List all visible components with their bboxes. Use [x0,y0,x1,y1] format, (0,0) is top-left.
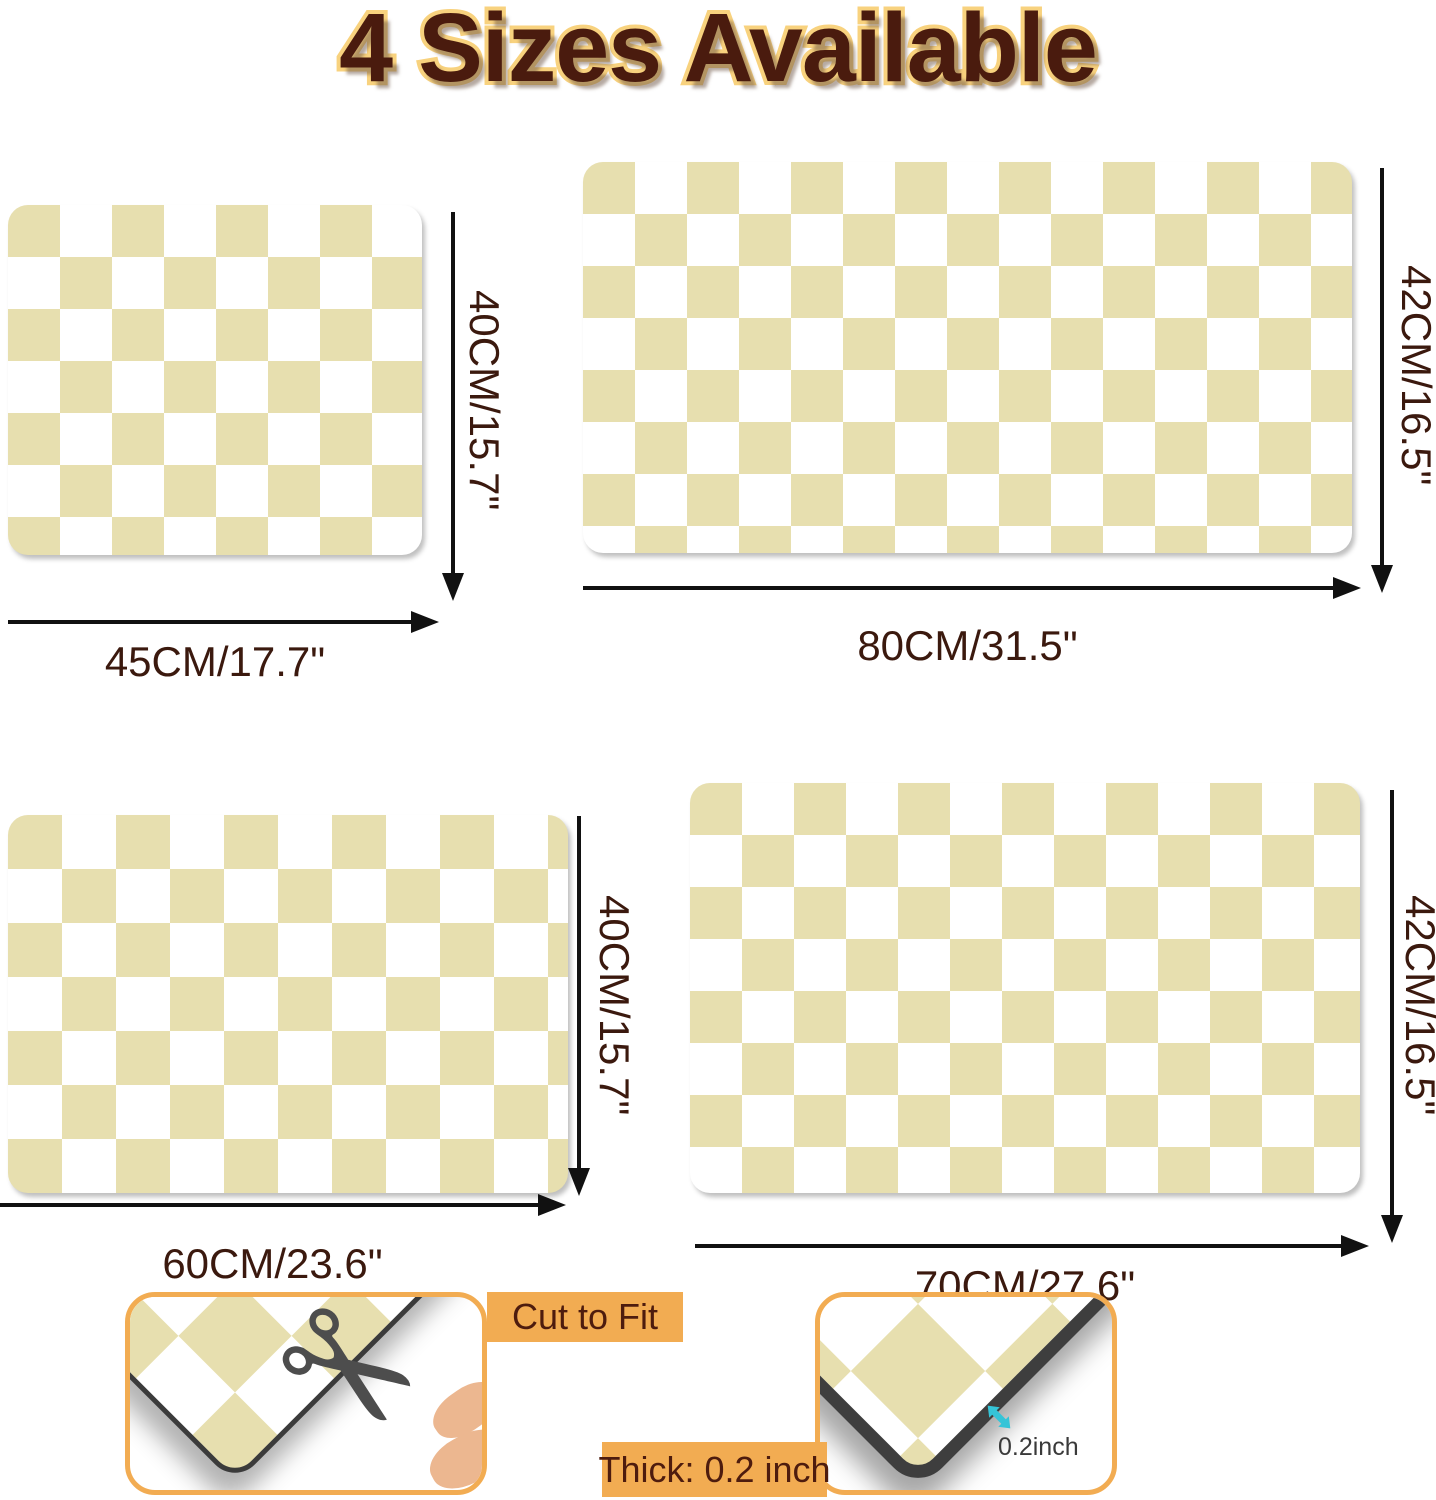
mat-small-height-label: 40CM/15.7" [460,230,508,570]
mat-small-width-arrow [8,620,412,624]
arrow-head-icon [442,573,464,601]
mat-medium-height-arrow [577,816,581,1169]
mat-extra-large-width-label: 80CM/31.5" [583,622,1352,670]
cut-to-fit-photo: ✂ [125,1292,487,1495]
thickness-label: Thick: 0.2 inch [602,1442,827,1497]
cut-to-fit-label: Cut to Fit [487,1292,683,1342]
arrow-head-icon [1371,565,1393,593]
mat-large-height-arrow [1390,790,1394,1216]
arrow-head-icon [568,1168,590,1196]
thickness-value: 0.2inch [998,1433,1079,1462]
mat-large-height-label: 42CM/16.5" [1396,795,1436,1215]
mat-large [690,783,1360,1193]
mat-medium-height-label: 40CM/15.7" [590,830,638,1180]
mat-extra-large-height-label: 42CM/16.5" [1392,175,1436,575]
mat-extra-large-width-arrow [583,586,1334,590]
arrow-head-icon [1333,577,1361,599]
thickness-photo: 0.2inch [815,1292,1117,1495]
mat-medium-width-label: 60CM/23.6" [20,1240,525,1288]
page-title: 4 Sizes Available [0,0,1436,104]
arrow-head-icon [1341,1235,1369,1257]
mat-small-height-arrow [451,212,455,574]
mat-small [8,205,422,555]
mat-extra-large [583,162,1352,553]
arrow-head-icon [538,1194,566,1216]
arrow-head-icon [411,611,439,633]
mat-extra-large-height-arrow [1380,168,1384,566]
mat-medium [8,815,568,1193]
size-infographic: 4 Sizes Available 40CM/15.7" 45CM/17.7" … [0,0,1436,1500]
mat-small-width-label: 45CM/17.7" [8,638,422,686]
mat-large-width-arrow [695,1244,1342,1248]
arrow-head-icon [1381,1215,1403,1243]
mat-medium-width-arrow [0,1203,539,1207]
